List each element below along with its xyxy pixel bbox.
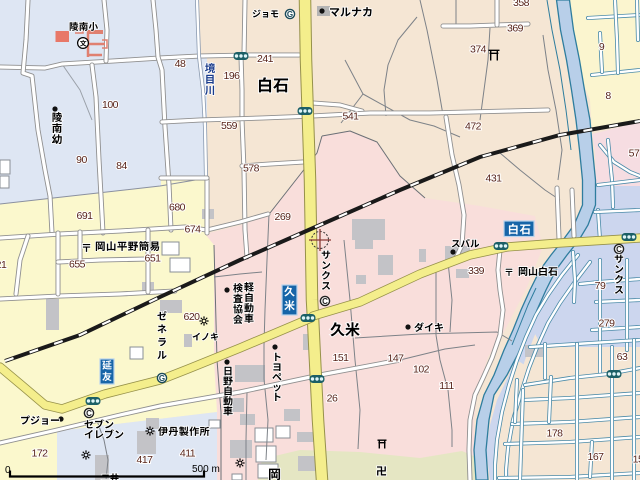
svg-text:84: 84 [116, 160, 127, 172]
svg-text:57: 57 [629, 147, 640, 159]
svg-text:374: 374 [470, 43, 487, 55]
svg-text:674: 674 [184, 223, 201, 235]
svg-text:100: 100 [102, 99, 119, 111]
svg-text:21: 21 [0, 259, 7, 271]
svg-text:102: 102 [413, 363, 430, 375]
svg-text:C: C [322, 297, 328, 306]
svg-text:691: 691 [76, 210, 93, 222]
svg-text:500 m: 500 m [192, 464, 220, 475]
svg-text:279: 279 [598, 317, 615, 329]
svg-text:369: 369 [507, 22, 524, 34]
svg-text:26: 26 [327, 392, 338, 404]
svg-text:358: 358 [513, 0, 530, 9]
svg-text:431: 431 [485, 172, 502, 184]
svg-text:178: 178 [546, 427, 563, 439]
svg-text:655: 655 [69, 258, 86, 270]
svg-text:541: 541 [342, 110, 359, 122]
svg-text:559: 559 [221, 120, 238, 132]
svg-text:48: 48 [175, 58, 186, 70]
svg-text:578: 578 [243, 162, 260, 174]
svg-text:417: 417 [136, 454, 153, 466]
svg-text:269: 269 [274, 211, 291, 223]
svg-text:8: 8 [605, 90, 611, 102]
svg-text:9: 9 [599, 41, 605, 53]
svg-text:167: 167 [587, 451, 604, 463]
svg-text:0: 0 [5, 465, 11, 476]
svg-text:241: 241 [257, 53, 274, 65]
svg-text:196: 196 [223, 70, 240, 82]
svg-text:G: G [287, 10, 293, 19]
svg-text:C: C [86, 409, 92, 418]
svg-text:15: 15 [633, 453, 640, 465]
svg-text:C: C [616, 245, 622, 254]
svg-text:63: 63 [617, 351, 628, 363]
svg-text:339: 339 [468, 265, 485, 277]
svg-text:90: 90 [76, 154, 87, 166]
svg-text:680: 680 [169, 201, 186, 213]
svg-text:151: 151 [332, 352, 349, 364]
svg-text:172: 172 [31, 447, 48, 459]
svg-text:411: 411 [180, 447, 196, 459]
svg-text:79: 79 [595, 280, 606, 292]
svg-text:111: 111 [439, 380, 454, 392]
svg-text:651: 651 [144, 252, 161, 264]
svg-text:472: 472 [465, 120, 482, 132]
svg-text:G: G [159, 374, 165, 383]
svg-text:620: 620 [183, 311, 200, 323]
svg-text:147: 147 [387, 352, 404, 364]
